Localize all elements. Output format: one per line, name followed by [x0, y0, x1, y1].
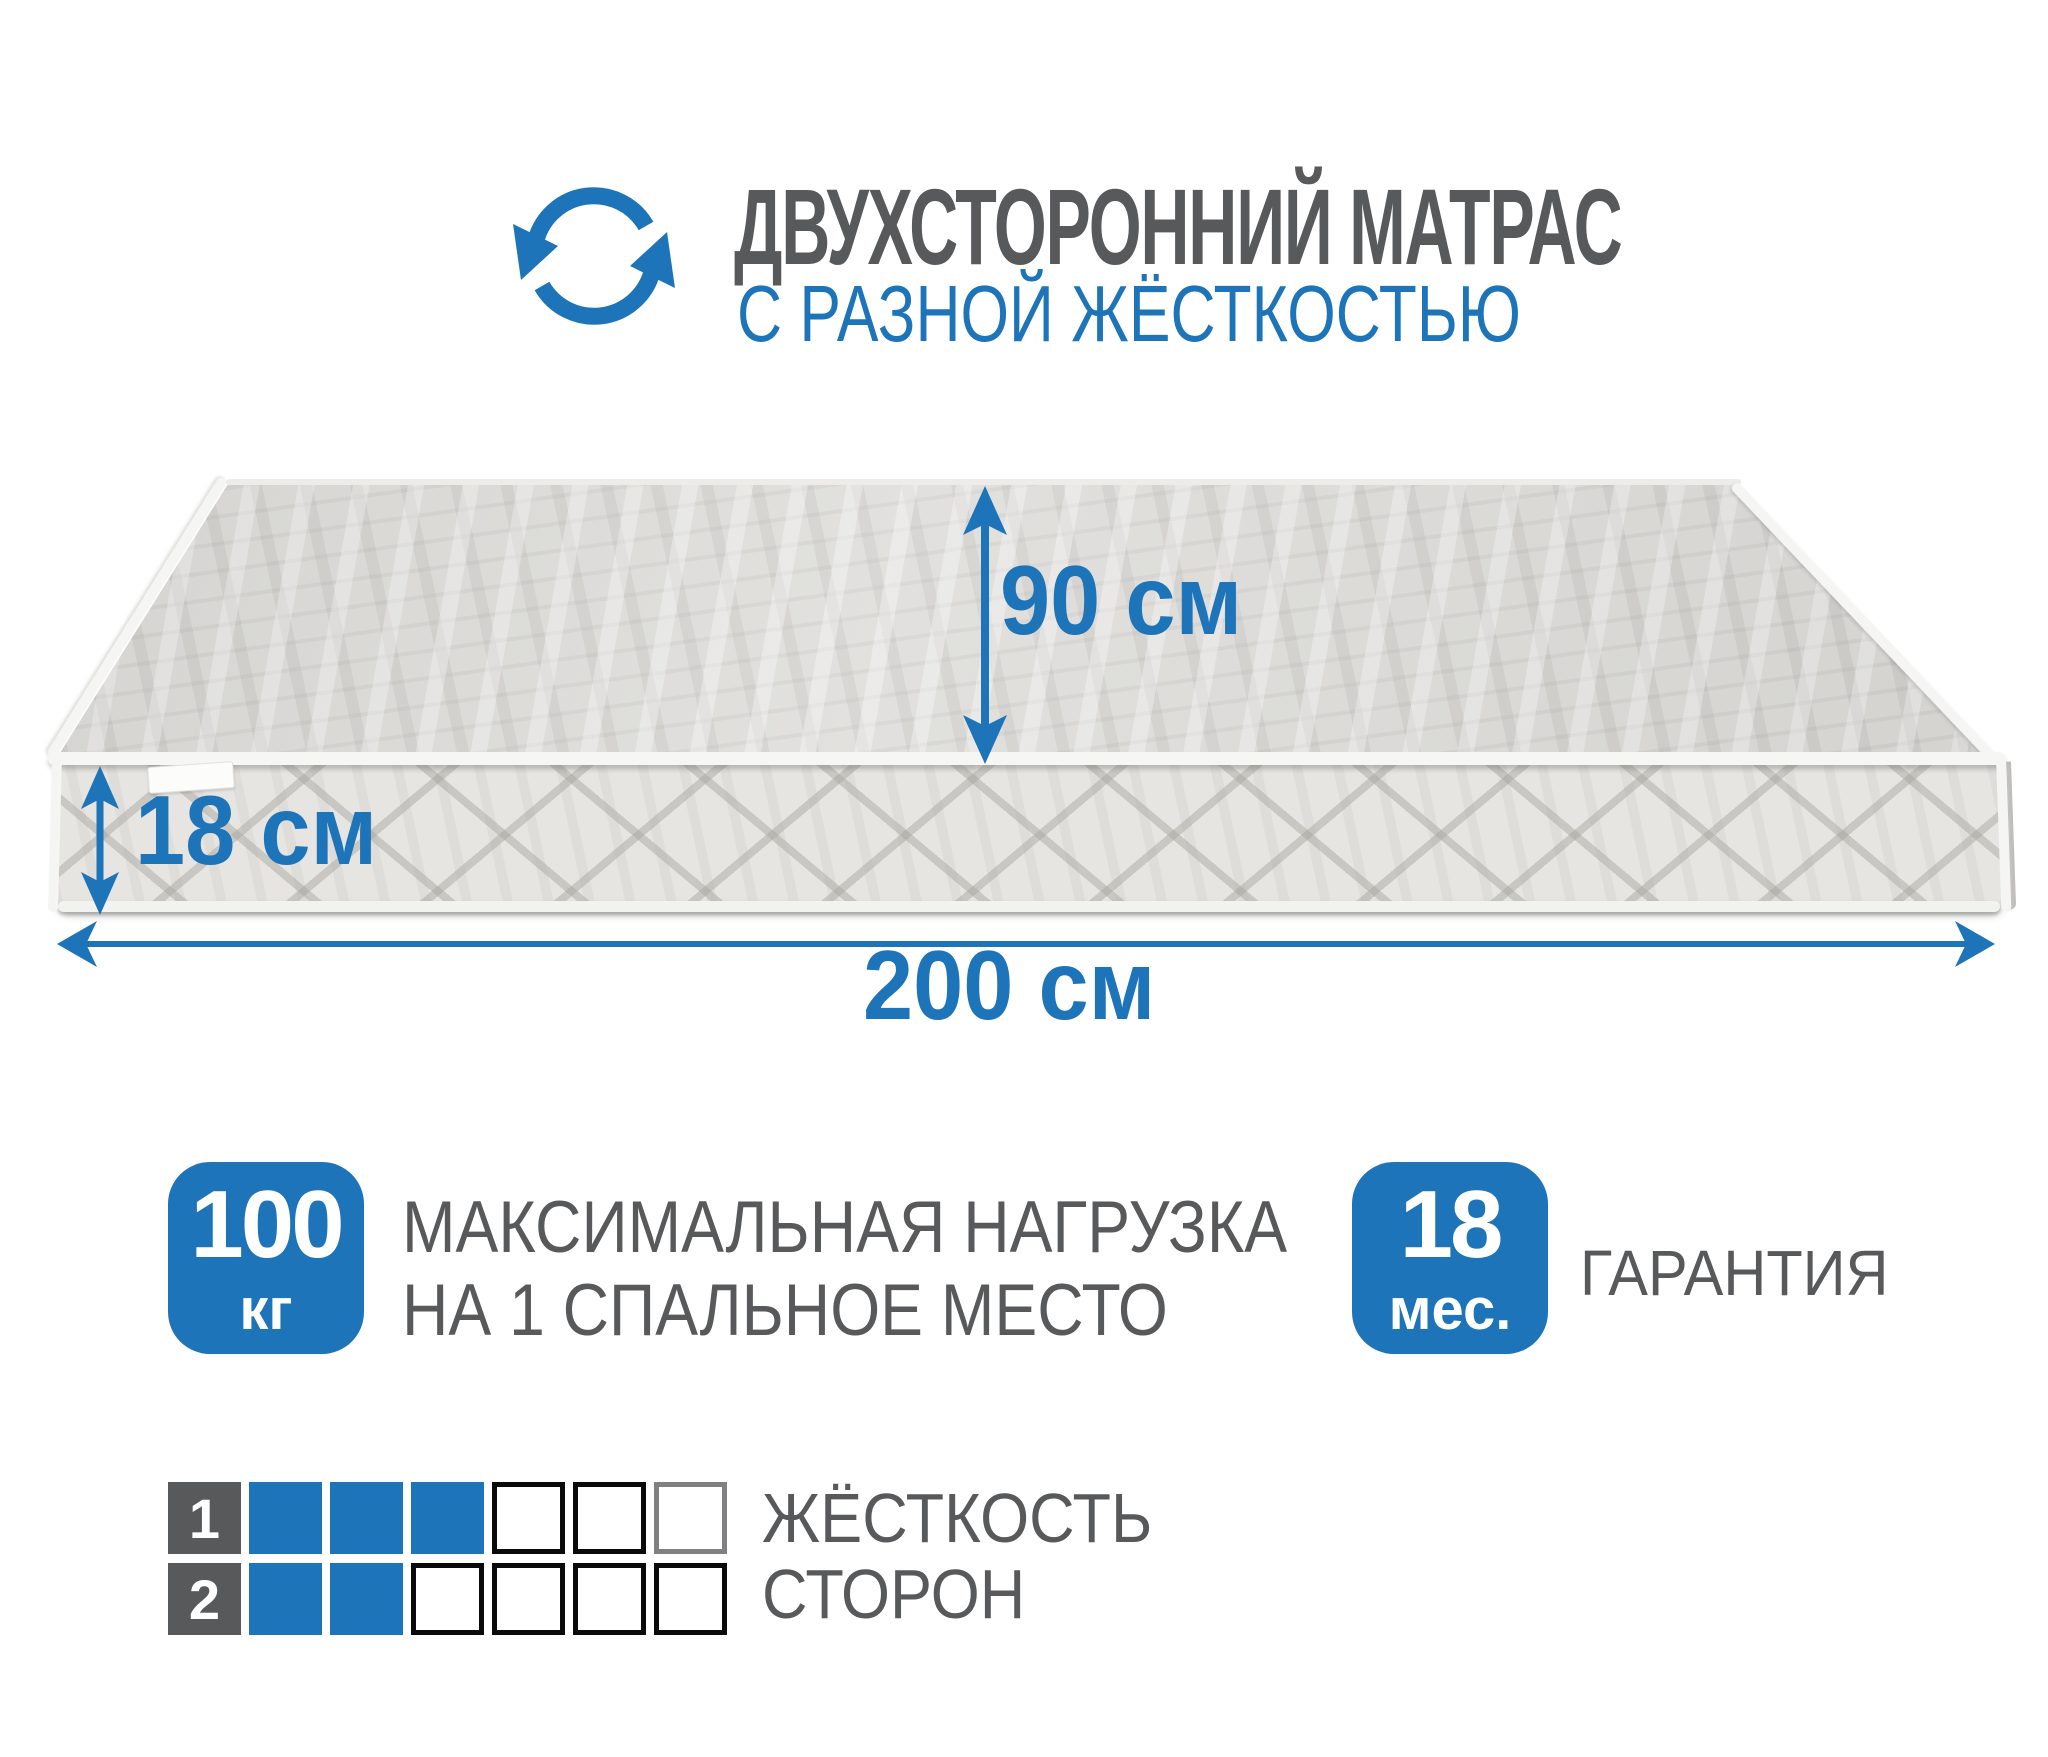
warranty-badge: 18 мес. [1352, 1162, 1548, 1354]
firmness-cell [411, 1482, 484, 1554]
max-load-description-line1: МАКСИМАЛЬНАЯ НАГРУЗКА [402, 1186, 1287, 1269]
firmness-cell [249, 1563, 322, 1635]
firmness-cell [249, 1482, 322, 1554]
firmness-cell [573, 1482, 646, 1554]
firmness-scale: 1 2 [168, 1482, 727, 1644]
length-dimension-label: 200 см [863, 934, 1155, 1037]
firmness-cell [492, 1482, 565, 1554]
warranty-unit: мес. [1389, 1281, 1512, 1339]
mattress-infographic: ДВУХСТОРОННИЙ МАТРАС С РАЗНОЙ ЖЁСТКОСТЬЮ [0, 0, 2048, 1757]
max-load-description: МАКСИМАЛЬНАЯ НАГРУЗКА НА 1 СПАЛЬНОЕ МЕСТ… [402, 1186, 1287, 1352]
warranty-label: ГАРАНТИЯ [1580, 1236, 1888, 1310]
firmness-row-side1: 1 [168, 1482, 727, 1554]
firmness-cell [654, 1563, 727, 1635]
max-load-unit: кг [239, 1281, 292, 1339]
mattress-far-edge-piping [226, 479, 1741, 485]
thickness-dimension-label: 18 см [135, 779, 377, 882]
firmness-cell [654, 1482, 727, 1554]
firmness-side-number: 2 [168, 1563, 241, 1635]
firmness-cell [411, 1563, 484, 1635]
max-load-value: 100 [190, 1177, 341, 1273]
max-load-description-line2: НА 1 СПАЛЬНОЕ МЕСТО [402, 1269, 1287, 1352]
max-load-badge: 100 кг [168, 1162, 364, 1354]
warranty-value: 18 [1400, 1177, 1501, 1273]
page-subtitle: С РАЗНОЙ ЖЁСТКОСТЬЮ [737, 270, 1521, 358]
firmness-cell [573, 1563, 646, 1635]
firmness-caption-line2: СТОРОН [762, 1556, 1152, 1632]
width-dimension-label: 90 см [1000, 549, 1242, 652]
firmness-caption-line1: ЖЁСТКОСТЬ [762, 1480, 1152, 1556]
mattress-front-top-piping [48, 752, 2006, 765]
firmness-side-number: 1 [168, 1482, 241, 1554]
rotate-arrows-icon [511, 180, 679, 334]
mattress-front-bottom-piping [58, 901, 2000, 912]
firmness-row-side2: 2 [168, 1563, 727, 1635]
firmness-cell [330, 1563, 403, 1635]
firmness-caption: ЖЁСТКОСТЬ СТОРОН [762, 1480, 1152, 1632]
firmness-cell [492, 1563, 565, 1635]
firmness-cell [330, 1482, 403, 1554]
